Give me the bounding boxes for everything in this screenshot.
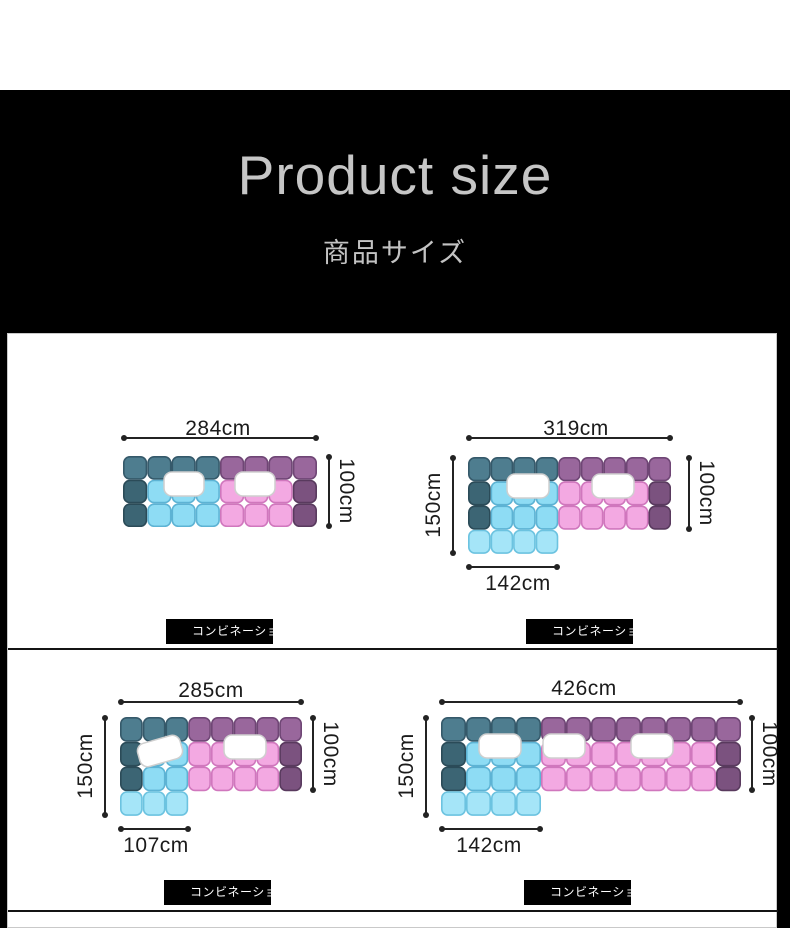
- depth-dimension-label-left: 150cm: [395, 733, 419, 799]
- sofa-top-view: [441, 717, 741, 816]
- combination-tag: コンビネーショ: [164, 880, 271, 905]
- lower-background: 284cm 100cm コンビネーショ 319cm 150cm 100cm: [0, 333, 790, 928]
- sofa-top-view: [120, 717, 302, 816]
- width-dimension-label: 426cm: [551, 677, 617, 701]
- width-dimension-line: [441, 701, 741, 703]
- width-dimension-line: [123, 437, 317, 439]
- banner-subtitle: 商品サイズ: [323, 231, 467, 270]
- width-dimension-label: 285cm: [178, 679, 244, 703]
- chaise-dimension-label: 107cm: [123, 834, 189, 858]
- depth-dimension-label-right: 100cm: [694, 460, 718, 526]
- page: Product size 商品サイズ 284cm 100cm コンビネーショ 3…: [0, 0, 790, 928]
- combination-tag-label: コンビネーショ: [190, 885, 271, 899]
- chaise-dimension-line: [120, 828, 189, 830]
- combination-tag-label: コンビネーショ: [192, 624, 273, 638]
- depth-dimension-line-left: [425, 717, 427, 816]
- combination-tag: コンビネーショ: [166, 619, 273, 644]
- sofa-top-view: [468, 457, 671, 554]
- depth-dimension-line-left: [452, 457, 454, 554]
- size-banner: Product size 商品サイズ: [0, 90, 790, 333]
- section-divider-2: [8, 910, 778, 912]
- combination-tag: コンビネーショ: [526, 619, 633, 644]
- depth-dimension-line-right: [751, 717, 753, 791]
- sofa-top-view: [123, 456, 317, 527]
- depth-dimension-line-right: [688, 457, 690, 530]
- chaise-dimension-line: [468, 566, 558, 568]
- combination-tag-label: コンビネーショ: [550, 885, 631, 899]
- chaise-dimension-label: 142cm: [456, 834, 522, 858]
- width-dimension-line: [468, 437, 671, 439]
- depth-dimension-label-right: 100cm: [334, 458, 358, 524]
- depth-dimension-label-right: 100cm: [318, 721, 342, 787]
- banner-title: Product size: [238, 148, 553, 203]
- section-divider-1: [8, 648, 778, 650]
- depth-dimension-label-right: 100cm: [757, 721, 781, 787]
- combination-tag: コンビネーショ: [524, 880, 631, 905]
- content-panel: 284cm 100cm コンビネーショ 319cm 150cm 100cm: [7, 333, 777, 928]
- width-dimension-line: [120, 701, 302, 703]
- depth-dimension-line-right: [328, 456, 330, 527]
- combination-tag-label: コンビネーショ: [552, 624, 633, 638]
- depth-dimension-label-left: 150cm: [422, 472, 446, 538]
- depth-dimension-line-left: [104, 717, 106, 816]
- depth-dimension-line-right: [312, 717, 314, 791]
- chaise-dimension-line: [441, 828, 541, 830]
- depth-dimension-label-left: 150cm: [74, 733, 98, 799]
- chaise-dimension-label: 142cm: [485, 572, 551, 596]
